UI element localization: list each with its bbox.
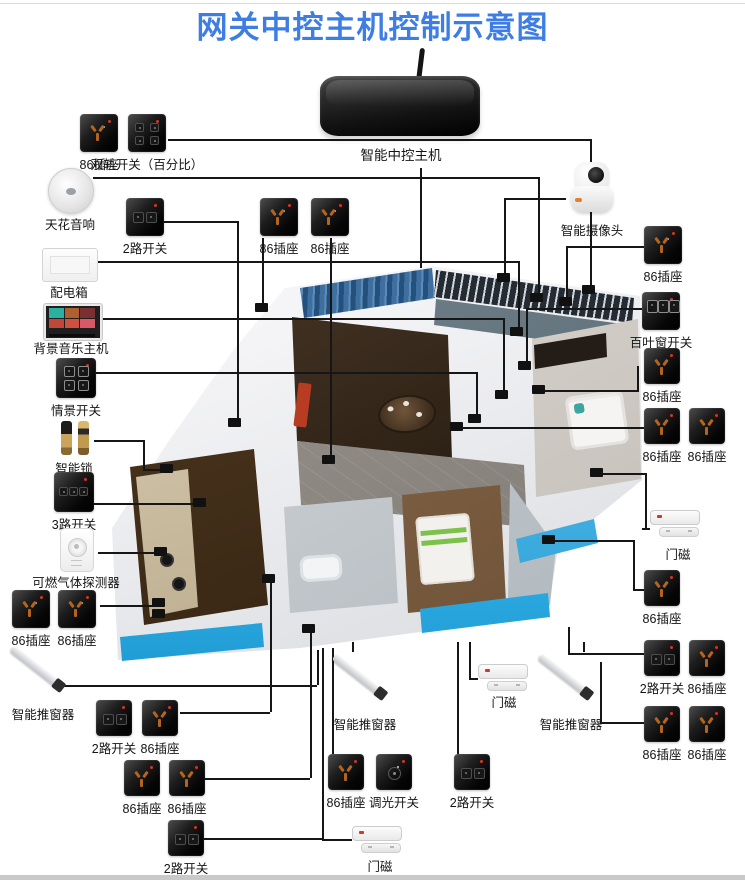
device-label: 智能推窗器 [12,704,75,723]
device-label: 门磁 [665,544,690,563]
connector-line [96,372,476,374]
device-switch2: 2路开关 [126,198,164,236]
socket-icon [689,706,725,742]
connector-line [645,473,647,528]
device-label: 情景开关 [51,400,101,419]
device-switch2: 2路开关 [96,700,132,736]
connector-line [457,642,459,754]
connector-line [93,177,540,179]
bottom-divider [0,875,745,880]
connector-line [633,540,635,590]
device-scene: 情景开关 [56,358,96,398]
connector-line [310,630,312,778]
device-switch2: 2路开关 [454,754,490,790]
device-socket: 86插座 [689,640,725,676]
switch2-icon [126,198,164,236]
connection-point [160,464,173,473]
stove-burner [162,555,172,565]
device-label: 2路开关 [92,738,136,757]
device-label: 86插座 [643,446,682,465]
connector-line [163,221,239,223]
device-label: 86插座 [643,386,682,405]
dimmer-icon [376,754,412,790]
device-dualrail: 双轨开关（百分比） [128,114,166,152]
connection-point [302,624,315,633]
socket-icon [142,700,178,736]
connection-point [582,285,595,294]
connector-line [180,712,270,714]
connector-line [420,168,422,268]
doorsensor-icon [650,510,706,542]
switch2-icon [96,700,132,736]
device-label: 86插座 [688,446,727,465]
device-socket: 86插座 [124,760,160,796]
socket-icon [80,114,118,152]
device-doorsensor: 门磁 [352,826,408,854]
device-socket: 86插座 [328,754,364,790]
connector-line [100,605,158,607]
device-doorsensor: 门磁 [478,664,530,690]
device-label: 智能摄像头 [561,220,624,239]
device-socket: 86插座 [689,706,725,742]
device-speaker: 天花音响 [48,168,92,212]
connection-point [322,455,335,464]
connector-line [504,198,506,278]
connector-line [504,198,566,200]
connector-line [518,261,520,331]
camera-icon [566,162,618,218]
device-label: 门磁 [491,692,516,711]
gateway-label: 智能中控主机 [320,144,482,164]
device-socket: 86插座 [260,198,298,236]
device-socket: 86插座 [644,570,680,606]
switch2-icon [168,820,204,856]
distbox-icon [42,248,98,282]
connector-line [637,366,639,392]
socket-icon [644,348,680,384]
device-socket: 86插座 [644,226,682,264]
connector-line [98,318,503,320]
device-camera: 智能摄像头 [566,162,618,218]
socket-icon [689,408,725,444]
doorsensor-icon [352,826,408,854]
connector-line [469,678,478,680]
pusher-icon [330,648,400,712]
connection-point [495,390,508,399]
page-title: 网关中控主机控制示意图 [0,2,745,47]
bed [415,513,475,585]
device-label: 86插座 [141,738,180,757]
socket-icon [311,198,349,236]
socket-icon [12,590,50,628]
stove-burner [174,579,184,589]
device-socket: 86插座 [142,700,178,736]
connector-line [458,427,644,429]
connector-line [633,589,644,591]
device-gas: 可燃气体探测器 [60,528,92,570]
connection-point [152,609,165,618]
socket-icon [124,760,160,796]
connector-line [550,540,633,542]
device-music: 背景音乐主机 [44,304,98,336]
connector-line [503,318,505,394]
schematic-page: { "title": "网关中控主机控制示意图", "gateway": { "… [0,0,745,880]
bathtub [299,554,343,583]
socket-icon [644,408,680,444]
connector-line [98,552,160,554]
connection-point [559,297,572,306]
device-socket: 86插座 [58,590,96,628]
connection-point [468,414,481,423]
connection-point [497,273,510,282]
device-socket: 86插座 [311,198,349,236]
connection-point [255,303,268,312]
device-label: 智能推窗器 [540,714,603,733]
connector-line [476,372,478,419]
connector-line [205,778,310,780]
device-label: 86插座 [643,608,682,627]
connector-line [168,139,592,141]
device-label: 门磁 [367,856,392,875]
connection-point [228,418,241,427]
device-pusher: 智能推窗器 [8,640,78,702]
device-socket: 86插座 [644,408,680,444]
connector-line [94,503,199,505]
connector-line [322,839,352,841]
device-pusher: 智能推窗器 [536,648,606,712]
connector-line [600,722,644,724]
socket-icon [169,760,205,796]
device-label: 双轨开关（百分比） [91,154,204,173]
device-label: 2路开关 [640,678,684,697]
connector-line [566,246,568,302]
socket-icon [644,226,682,264]
device-label: 86插座 [260,238,299,257]
device-socket: 86插座 [80,114,118,152]
device-blinds: 百叶窗开关 [642,292,680,330]
device-label: 86插座 [644,266,683,285]
device-lock: 智能锁 [54,420,94,456]
doorsensor-icon [478,664,530,690]
connection-point [193,498,206,507]
device-switch3: 3路开关 [54,472,94,512]
connector-line [540,390,638,392]
scene-icon [56,358,96,398]
connector-line [330,238,332,460]
connector-line [538,177,540,297]
connector-line [469,642,471,678]
socket-icon [644,706,680,742]
device-switch2: 2路开关 [168,820,204,856]
connector-line [96,261,520,263]
device-label: 86插座 [123,798,162,817]
gas-icon [60,528,94,572]
pusher-icon [8,640,78,702]
gateway-device: 智能中控主机 [320,46,482,168]
connection-point [450,422,463,431]
connector-line [526,308,528,366]
connector-line [642,528,650,530]
connector-line [237,221,239,423]
device-label: 86插座 [688,744,727,763]
connector-line [322,648,324,838]
connection-point [152,598,165,607]
device-pusher: 智能推窗器 [330,648,400,712]
socket-icon [328,754,364,790]
connector-line [62,685,317,687]
device-distbox: 配电箱 [42,248,96,280]
pusher-icon [536,648,606,712]
connection-point [154,547,167,556]
socket-icon [58,590,96,628]
socket-icon [644,570,680,606]
connector-line [270,580,272,712]
device-label: 86插座 [168,798,207,817]
sofa [565,389,630,451]
connection-point [532,385,545,394]
connection-point [590,468,603,477]
device-switch2: 2路开关 [644,640,680,676]
device-socket: 86插座 [169,760,205,796]
device-label: 可燃气体探测器 [32,572,120,591]
connector-line [566,246,644,248]
device-socket: 86插座 [689,408,725,444]
device-label: 86插座 [311,238,350,257]
device-label: 86插座 [643,744,682,763]
connection-point [530,293,543,302]
device-label: 配电箱 [50,282,88,301]
device-label: 背景音乐主机 [33,338,108,357]
device-label: 智能推窗器 [334,714,397,733]
device-socket: 86插座 [12,590,50,628]
connector-line [317,650,319,685]
device-label: 86插座 [688,678,727,697]
switch3-icon [54,472,94,512]
connection-point [542,535,555,544]
switch2-icon [454,754,490,790]
dualrail-icon [128,114,166,152]
lock-icon [54,420,94,456]
socket-icon [260,198,298,236]
device-label: 86插座 [327,792,366,811]
connector-line [598,473,645,475]
device-label: 调光开关 [369,792,419,811]
device-socket: 86插座 [644,706,680,742]
device-doorsensor: 门磁 [650,510,706,542]
device-socket: 86插座 [644,348,680,384]
connector-line [94,440,143,442]
device-label: 2路开关 [123,238,167,257]
socket-icon [689,640,725,676]
connection-point [518,361,531,370]
music-icon [44,304,102,340]
connection-point [510,327,523,336]
device-label: 2路开关 [450,792,494,811]
speaker-icon [48,168,94,214]
device-label: 天花音响 [45,214,95,233]
device-dimmer: 调光开关 [376,754,412,790]
connector-line [200,838,324,840]
connector-line [143,440,145,470]
blinds-icon [642,292,680,330]
gateway-box-icon [320,76,480,136]
connector-line [526,308,642,310]
switch2-icon [644,640,680,676]
connection-point [262,574,275,583]
